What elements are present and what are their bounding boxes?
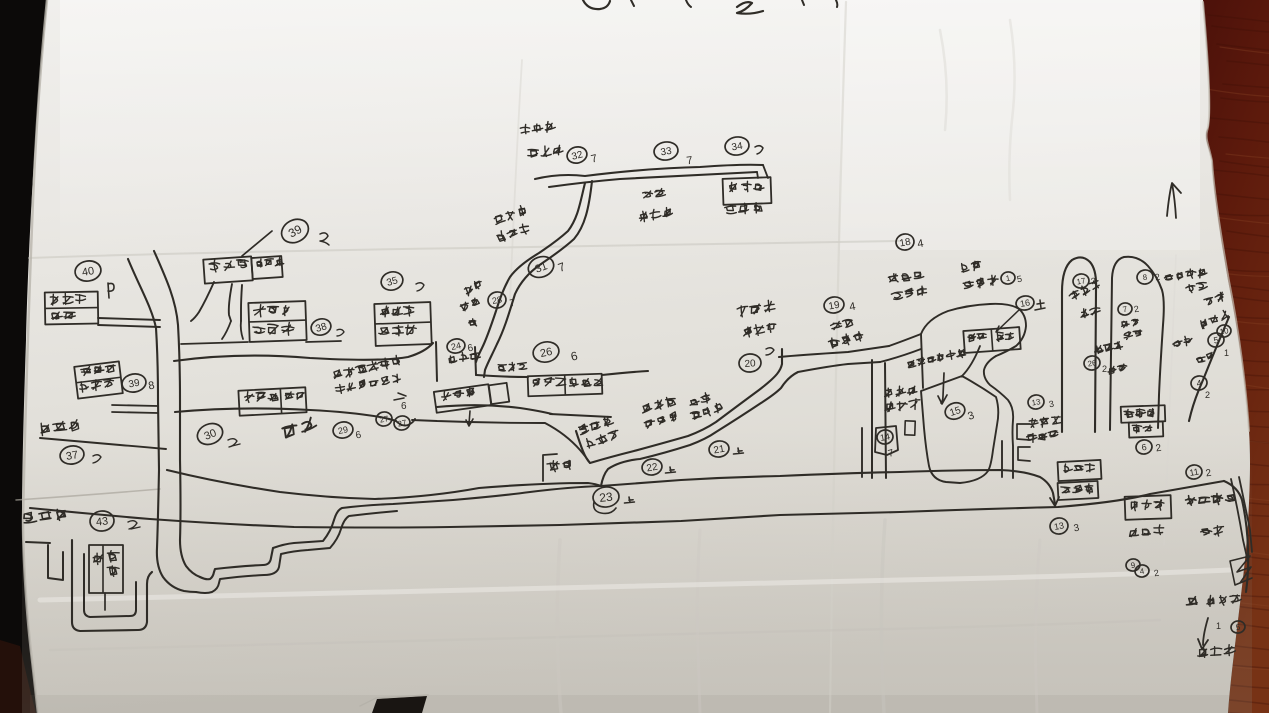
svg-text:13: 13 <box>1053 520 1065 532</box>
svg-text:24: 24 <box>450 340 462 352</box>
svg-text:1: 1 <box>1224 348 1229 358</box>
svg-text:2: 2 <box>1205 390 1210 400</box>
svg-text:34: 34 <box>731 141 744 154</box>
svg-text:6: 6 <box>401 401 407 412</box>
svg-text:29: 29 <box>337 424 349 436</box>
svg-text:26: 26 <box>539 346 553 360</box>
svg-text:23: 23 <box>599 490 614 505</box>
svg-text:43: 43 <box>95 515 108 528</box>
svg-text:28: 28 <box>491 294 503 306</box>
svg-text:33: 33 <box>660 146 673 159</box>
svg-text:1: 1 <box>1216 621 1221 631</box>
svg-text:20: 20 <box>744 358 756 370</box>
svg-text:14: 14 <box>879 431 891 443</box>
svg-text:2: 2 <box>1102 364 1107 374</box>
svg-text:37: 37 <box>65 449 79 463</box>
svg-text:11: 11 <box>1189 466 1200 477</box>
svg-text:16: 16 <box>1019 297 1031 309</box>
svg-text:40: 40 <box>81 265 95 279</box>
